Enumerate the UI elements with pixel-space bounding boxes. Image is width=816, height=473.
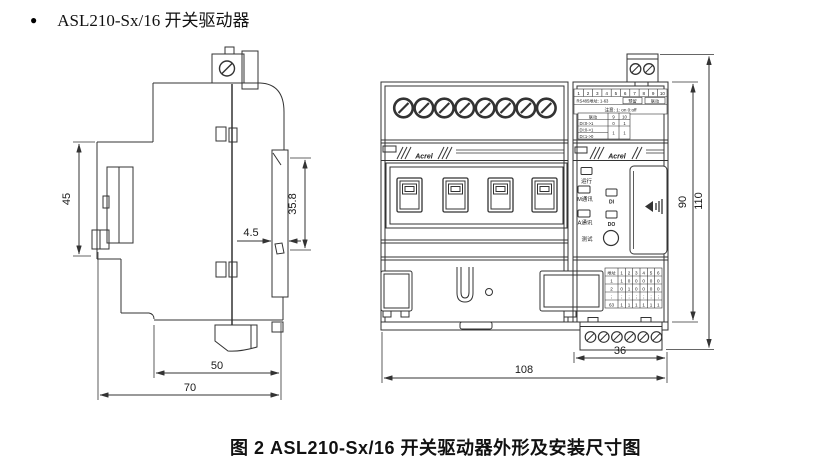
screw-terminal-icon [455, 99, 474, 118]
table-cell: 5 [650, 271, 653, 276]
test-button [604, 231, 619, 246]
table-cell: 1 [650, 303, 653, 308]
table-cell: 0 [635, 279, 638, 284]
manual-page: ●ASL210-Sx/16 开关驱动器 [0, 0, 816, 473]
side-rear-panel [272, 150, 288, 332]
indicator-hole [486, 289, 493, 296]
brand-band: Acrel [383, 146, 564, 161]
screw-terminal-icon [476, 99, 495, 118]
dip-number: 7 [633, 91, 636, 96]
screw-terminal-icon [517, 99, 536, 118]
table-cell: ⋮ [634, 295, 638, 300]
brand-logo: Acrel [414, 154, 434, 161]
address-table: 地址 1 2 3 4 5 6 1 1 0 0 0 0 0 2 0 1 [605, 268, 662, 308]
dimension-drawing: 45 35.8 4.5 50 70 [0, 0, 816, 473]
switch-rocker [443, 178, 468, 212]
table-cell: 1 [635, 303, 638, 308]
m-comm-led-label: M通讯 [577, 195, 593, 203]
linkage-table: 联动 9 10 DI:0->1 0 1 DI:0->1 DI:1->0 1 1 [578, 113, 630, 139]
dip-number: 10 [660, 91, 666, 96]
table-cell: 0 [642, 287, 645, 292]
top-screw-terminals [394, 99, 555, 118]
table-cell: 2 [610, 287, 613, 292]
screw-terminal-icon [415, 99, 434, 118]
screw-terminal-icon [496, 99, 515, 118]
do-led-label: DO [608, 222, 616, 228]
table-cell: ⋮ [642, 295, 646, 300]
dip-switch-label: 1 2 3 4 5 6 7 8 9 10 RS485地址: 1-63 预留 联动 [574, 89, 667, 114]
table-cell: 0 [650, 279, 653, 284]
screw-terminal-icon [220, 61, 235, 76]
bottom-fittings [381, 267, 603, 317]
rail-notch [460, 322, 492, 329]
dim-108-label: 108 [515, 364, 533, 376]
rs485-address-text: RS485地址: 1-63 [577, 98, 610, 104]
table-cell: DI:0->1 [580, 121, 595, 126]
table-cell: 1 [620, 279, 623, 284]
table-cell: 3 [635, 271, 638, 276]
brand-band: Acrel [575, 147, 664, 161]
table-cell: 1 [642, 303, 645, 308]
table-cell: 1 [620, 271, 623, 276]
screw-terminal-icon [435, 99, 454, 118]
dim-35-8-label: 35.8 [287, 193, 299, 214]
dim-35-8: 35.8 [287, 158, 311, 250]
table-cell: 0 [628, 279, 631, 284]
table-cell: 0 [635, 287, 638, 292]
section-dividers [381, 140, 568, 260]
dip-number: 1 [577, 91, 580, 96]
table-cell: 4 [642, 271, 645, 276]
table-cell: 0 [650, 287, 653, 292]
dip-number: 5 [615, 91, 618, 96]
table-cell: ⋮ [649, 295, 653, 300]
table-cell: 1 [620, 303, 623, 308]
dip-number: 3 [596, 91, 599, 96]
table-cell: 0 [620, 287, 623, 292]
run-led-label: 运行 [581, 177, 593, 185]
table-cell: ⋮ [609, 295, 613, 300]
switch-panel [386, 163, 567, 228]
side-body-outline [97, 83, 284, 325]
table-cell: 2 [628, 271, 631, 276]
status-leds: 运行 M通讯 DI A通讯 DO 测试 [577, 168, 618, 246]
spine-latches [216, 127, 237, 277]
reserved-label: 预留 [628, 97, 636, 104]
table-cell: DI:0->1 [580, 128, 595, 133]
table-cell: 10 [622, 114, 627, 119]
dim-110-label: 110 [693, 192, 705, 210]
dip-note-text: 注意: 1: on 0:off [604, 107, 637, 114]
side-view-drawing: 45 35.8 4.5 50 70 [61, 47, 311, 400]
table-cell: 0 [657, 279, 660, 284]
do-led-icon [606, 211, 617, 218]
dip-number: 4 [605, 91, 608, 96]
dim-4-5-label: 4.5 [243, 227, 258, 239]
dim-50-label: 50 [211, 360, 223, 372]
linkage-label: 联动 [651, 97, 659, 104]
dip-number: 2 [587, 91, 590, 96]
dim-45-label: 45 [61, 193, 73, 205]
dim-45: 45 [61, 142, 95, 256]
table-cell: 6 [657, 271, 660, 276]
table-cell: DI:1->0 [580, 134, 595, 139]
table-cell: 地址 [607, 270, 616, 276]
dim-70: 70 [98, 252, 279, 400]
din-release-clip-icon [457, 267, 473, 302]
bottom-clip [215, 325, 257, 351]
switch-rocker [397, 178, 422, 212]
table-cell: 1 [628, 303, 631, 308]
dim-36-label: 36 [614, 345, 626, 357]
dim-90-label: 90 [677, 196, 689, 208]
panel-notch [275, 243, 284, 254]
side-cover-panel [630, 166, 667, 254]
dip-number: 9 [652, 91, 655, 96]
table-cell: ⋮ [627, 295, 631, 300]
dim-70-label: 70 [184, 382, 196, 394]
brand-logo: Acrel [607, 154, 627, 161]
figure-caption: 图 2 ASL210-Sx/16 开关驱动器外形及安装尺寸图 [55, 434, 816, 460]
table-cell: 1 [628, 287, 631, 292]
a-comm-led-label: A通讯 [578, 219, 593, 227]
dip-number: 6 [624, 91, 627, 96]
table-cell: 63 [609, 303, 615, 308]
dip-number: 8 [643, 91, 646, 96]
front-view-drawing: Acrel [381, 54, 714, 383]
test-button-label: 测试 [581, 235, 593, 243]
dim-50: 50 [154, 323, 281, 400]
di-led-icon [606, 189, 617, 196]
dim-4-5: 4.5 [237, 227, 301, 241]
m-comm-led-icon [578, 186, 590, 193]
screw-terminal-icon [537, 99, 556, 118]
screw-terminal-icon [394, 99, 413, 118]
switch-rocker [488, 178, 513, 212]
run-led-icon [581, 168, 592, 175]
table-cell: 联动 [589, 113, 597, 120]
a-comm-led-icon [578, 210, 590, 217]
din-clip-profile [92, 167, 133, 249]
table-cell: 1 [657, 303, 660, 308]
table-cell: 1 [610, 279, 613, 284]
top-terminal-block [627, 54, 658, 86]
switch-rocker [532, 178, 557, 212]
di-led-label: DI [609, 200, 615, 206]
table-cell: ⋮ [620, 295, 624, 300]
table-cell: 0 [642, 279, 645, 284]
table-cell: 0 [657, 287, 660, 292]
table-cell: ⋮ [656, 295, 660, 300]
